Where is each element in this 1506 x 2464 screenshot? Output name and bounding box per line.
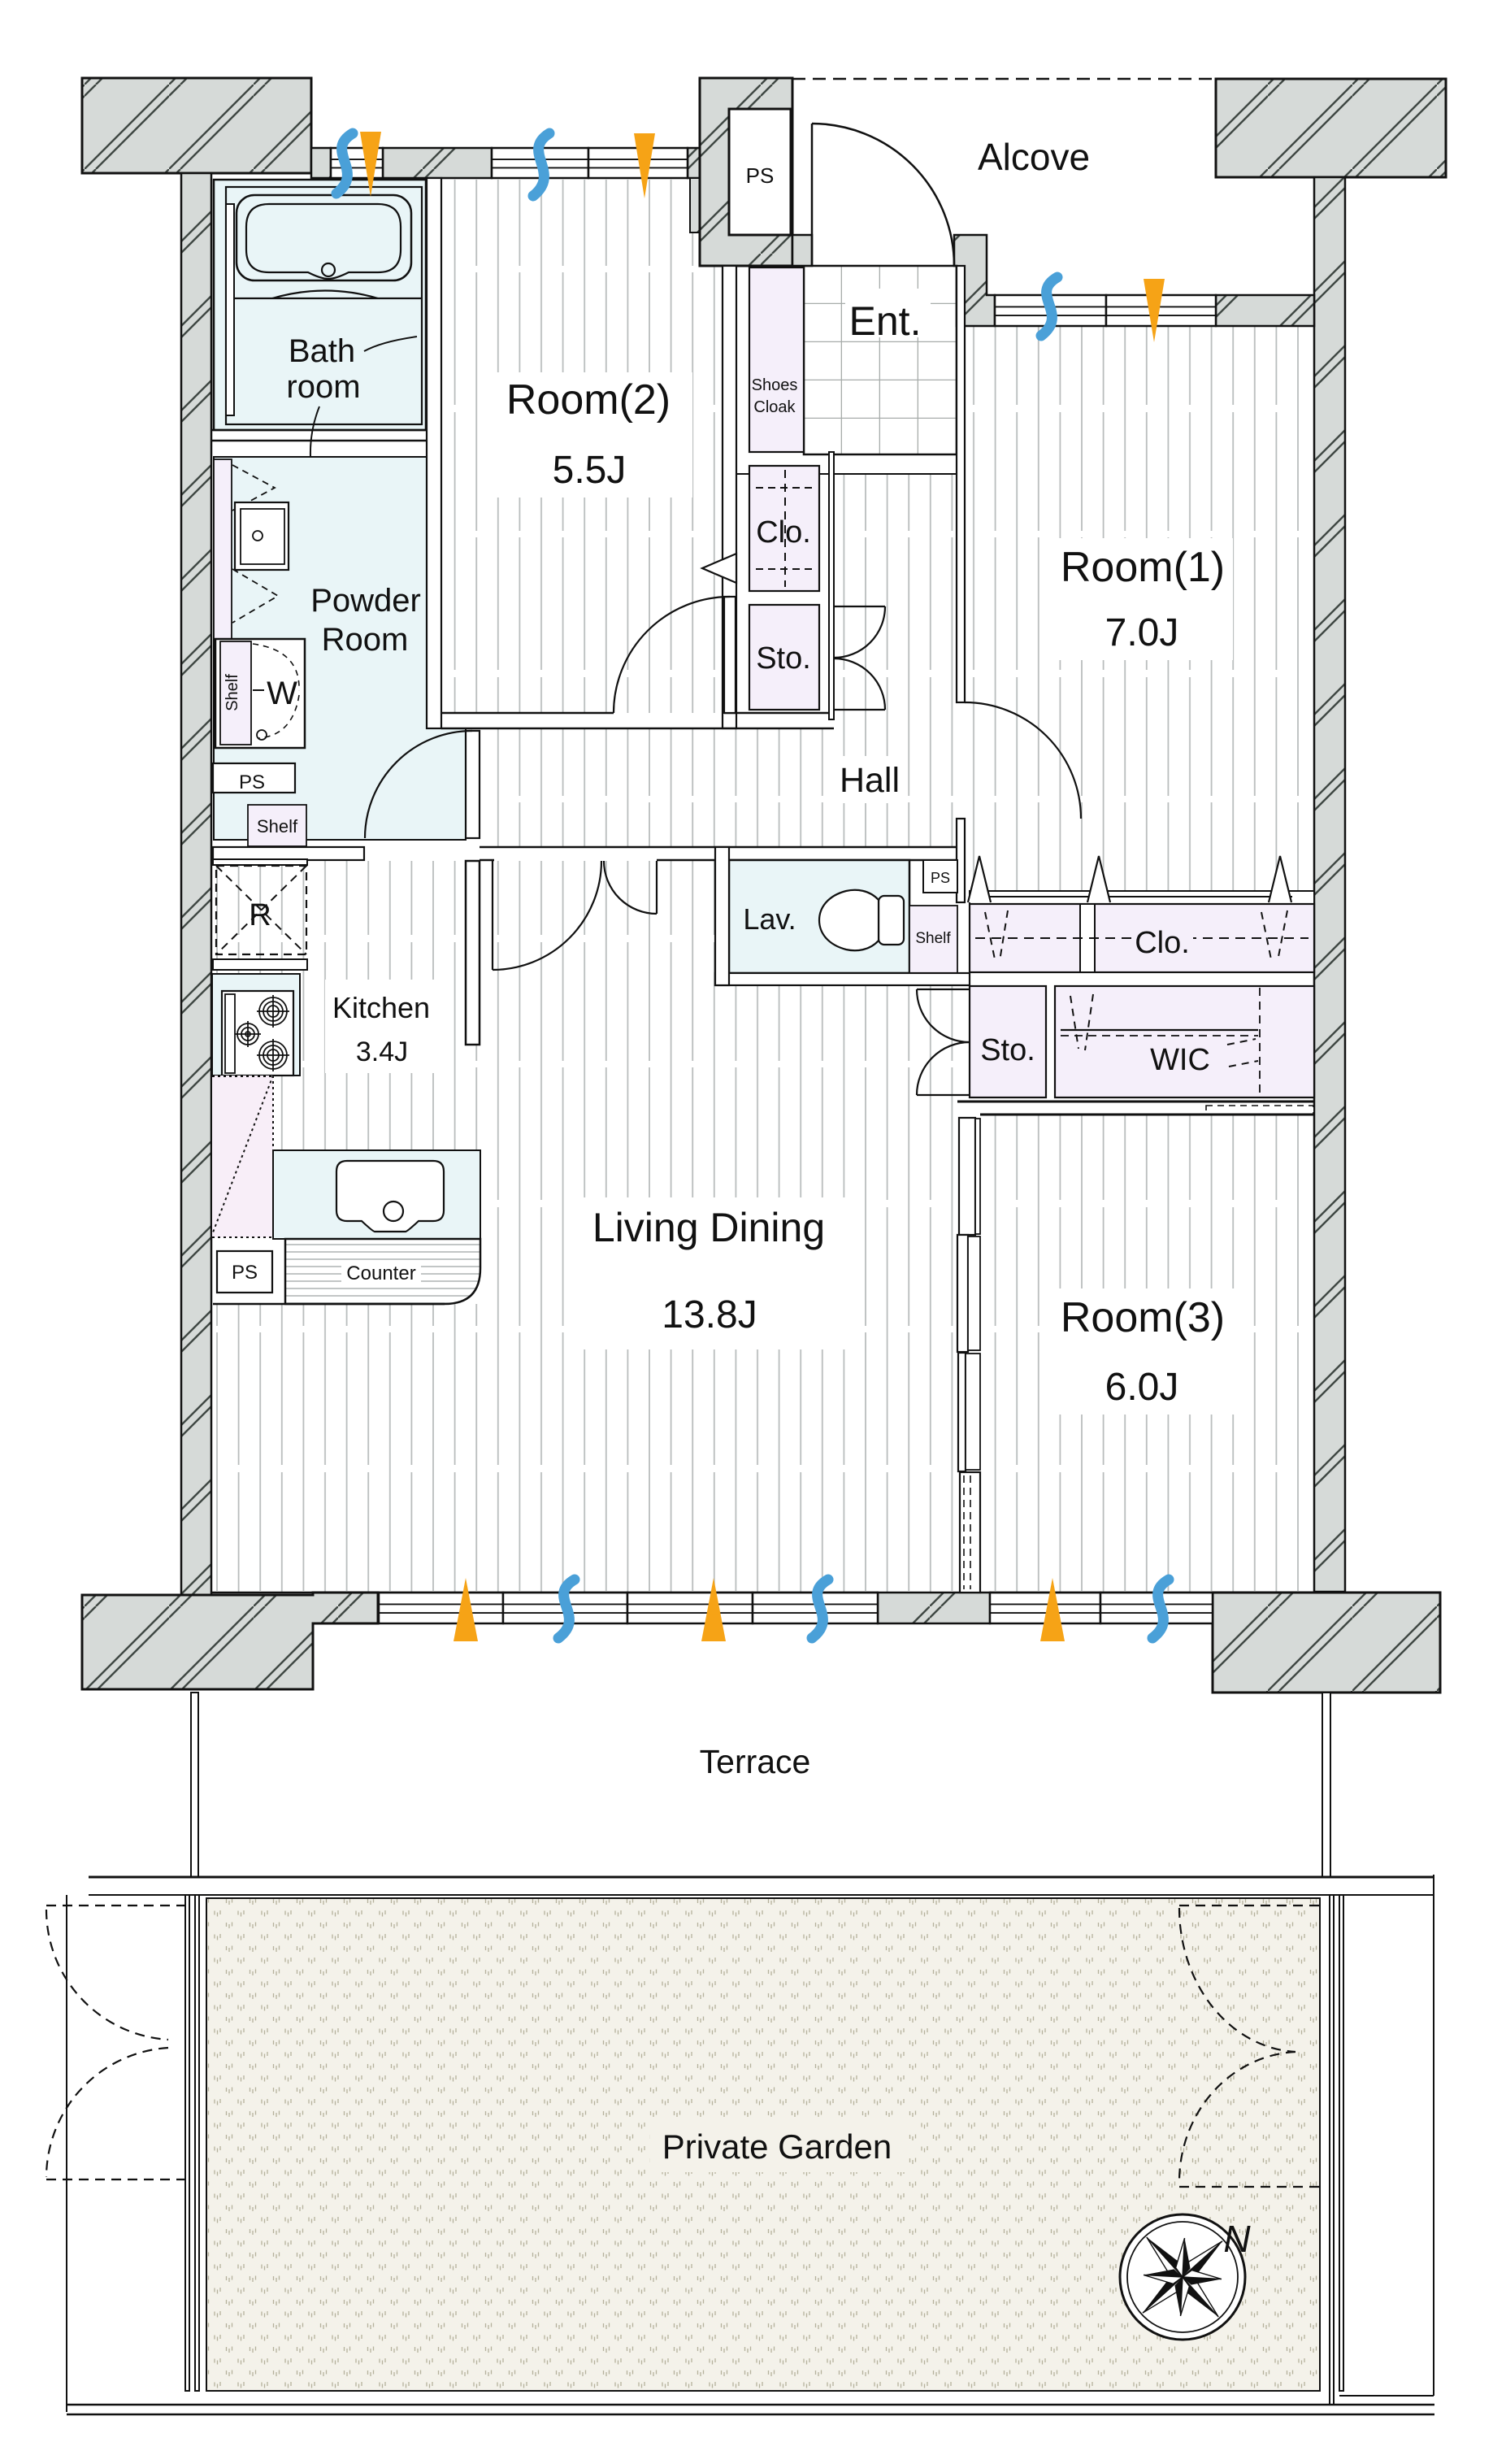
- svg-text:13.8J: 13.8J: [662, 1293, 757, 1336]
- svg-text:Room(3): Room(3): [1061, 1294, 1225, 1341]
- svg-text:Room(2): Room(2): [506, 376, 671, 424]
- svg-text:PS: PS: [239, 771, 265, 793]
- svg-text:Private Garden: Private Garden: [662, 2127, 892, 2166]
- svg-text:Clo.: Clo.: [1135, 926, 1190, 960]
- svg-text:Counter: Counter: [346, 1262, 415, 1284]
- svg-text:Cloak: Cloak: [753, 398, 796, 416]
- svg-text:Kitchen: Kitchen: [332, 991, 430, 1024]
- svg-text:Room(1): Room(1): [1061, 544, 1225, 591]
- svg-text:W: W: [267, 676, 297, 711]
- svg-text:Terrace: Terrace: [700, 1743, 811, 1780]
- svg-text:Shelf: Shelf: [257, 816, 298, 837]
- svg-text:WIC: WIC: [1150, 1043, 1210, 1077]
- svg-text:Sto.: Sto.: [756, 641, 811, 676]
- svg-text:Alcove: Alcove: [978, 136, 1090, 178]
- svg-text:Hall: Hall: [840, 761, 900, 800]
- svg-text:room: room: [286, 369, 360, 405]
- svg-text:Clo.: Clo.: [756, 515, 811, 550]
- svg-text:Lav.: Lav.: [743, 902, 796, 936]
- svg-text:Shoes: Shoes: [752, 376, 798, 394]
- svg-text:N: N: [1223, 2218, 1251, 2260]
- svg-text:Shelf: Shelf: [915, 930, 951, 947]
- svg-text:Ent.: Ent.: [849, 298, 922, 344]
- svg-text:Living Dining: Living Dining: [592, 1205, 825, 1250]
- svg-text:PS: PS: [232, 1262, 258, 1284]
- svg-text:5.5J: 5.5J: [553, 449, 627, 492]
- svg-text:3.4J: 3.4J: [356, 1036, 408, 1067]
- svg-text:Room: Room: [322, 622, 409, 658]
- svg-text:PS: PS: [746, 163, 775, 188]
- svg-text:7.0J: 7.0J: [1105, 611, 1179, 654]
- svg-text:Shelf: Shelf: [224, 674, 241, 711]
- svg-text:Bath: Bath: [289, 333, 355, 369]
- svg-text:Powder: Powder: [310, 583, 421, 619]
- svg-text:Sto.: Sto.: [980, 1033, 1035, 1067]
- svg-text:PS: PS: [931, 870, 950, 886]
- svg-text:R: R: [249, 898, 271, 932]
- svg-text:6.0J: 6.0J: [1105, 1366, 1179, 1409]
